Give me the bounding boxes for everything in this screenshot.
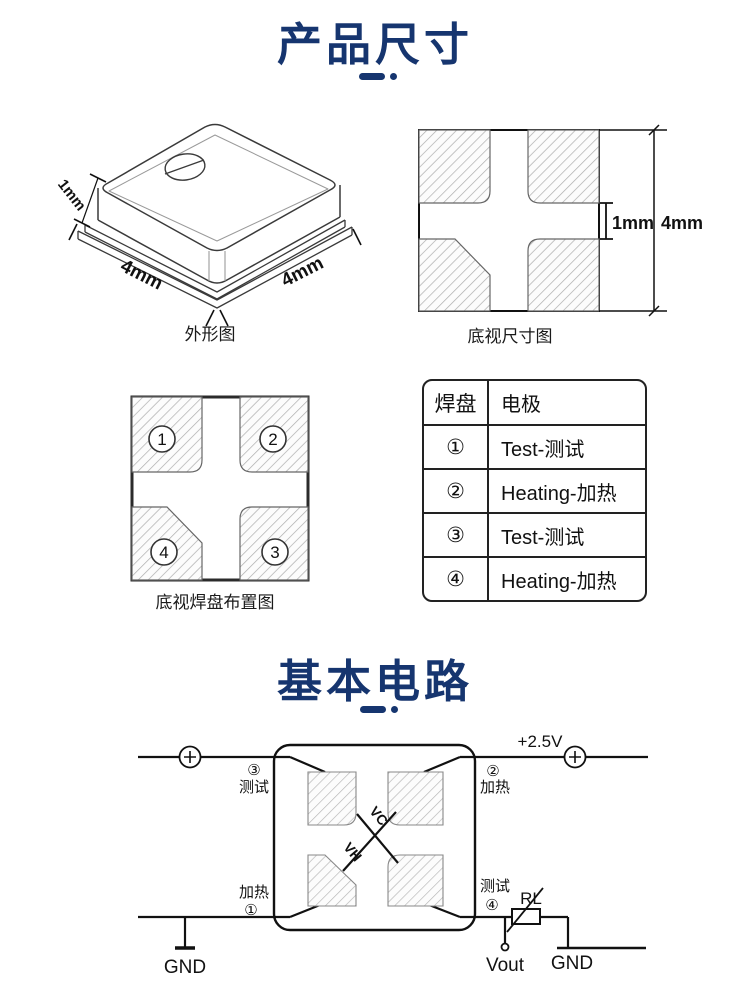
label-dim-left: 4mm (117, 256, 166, 295)
label-pin2-function: 加热 (480, 779, 510, 796)
pad-electrode-table: 焊盘 电极 ① Test-测试 ② Heating-加热 ③ Test-测试 ④… (422, 379, 647, 602)
label-gnd-left: GND (164, 957, 206, 978)
label-pin3-number: ③ (247, 762, 260, 779)
label-pin1-number: ① (244, 902, 257, 919)
product-spec-page: 产品尺寸 (0, 0, 750, 985)
pad-number-4: 4 (159, 543, 168, 562)
table-row-electrode: Test-测试 (487, 424, 645, 468)
label-pin4-function: 测试 (480, 878, 510, 895)
label-supply-voltage: +2.5V (518, 732, 564, 751)
plus-node-right (565, 747, 586, 768)
table-row-electrode: Heating-加热 (487, 468, 645, 512)
caption-bottom-view: 底视尺寸图 (405, 322, 615, 347)
package-3d-body (78, 125, 352, 309)
label-dim-side: 4mm (661, 213, 703, 233)
table-row-pad: ① (424, 424, 487, 468)
pad-number-1: 1 (157, 430, 166, 449)
label-vout: Vout (486, 955, 525, 976)
table-row-pad: ③ (424, 512, 487, 556)
plus-node-left (180, 747, 201, 768)
label-rl: RL (520, 889, 542, 908)
table-row-electrode: Heating-加热 (487, 556, 645, 600)
pad-number-2: 2 (268, 430, 277, 449)
title-underline-dash (360, 706, 386, 713)
table-header-pad: 焊盘 (424, 381, 487, 424)
label-dim-gap: 1mm (612, 213, 654, 233)
figure-outline-drawing: 1mm 4mm 4mm (35, 110, 385, 345)
label-dim-height: 1mm (54, 176, 89, 214)
pad-number-3: 3 (270, 543, 279, 562)
section-title-product-dimensions: 产品尺寸 (0, 8, 750, 73)
title-underline-dash (359, 73, 385, 80)
figure-pad-layout: 1 2 4 3 (95, 385, 335, 600)
caption-outline-drawing: 外形图 (35, 320, 385, 345)
label-pin1-function: 加热 (239, 884, 269, 901)
figure-basic-circuit: VC VH +2.5V ③ 测试 ② 加热 加热 ① 测试 ④ RL GND G… (80, 725, 690, 985)
label-pin3-function: 测试 (239, 779, 269, 796)
label-dim-right: 4mm (278, 253, 327, 292)
label-pin4-number: ④ (485, 897, 498, 914)
caption-pad-layout: 底视焊盘布置图 (95, 588, 335, 613)
title-underline-dot (390, 73, 397, 80)
figure-bottom-view-dimensions: 1mm 4mm (405, 112, 745, 342)
table-row-pad: ② (424, 468, 487, 512)
table-row-pad: ④ (424, 556, 487, 600)
vout-terminal (502, 944, 509, 951)
title-underline-dot (391, 706, 398, 713)
table-row-electrode: Test-测试 (487, 512, 645, 556)
label-pin2-number: ② (486, 763, 499, 780)
label-gnd-right: GND (551, 953, 593, 974)
table-header-electrode: 电极 (487, 381, 645, 424)
section-title-basic-circuit: 基本电路 (0, 645, 750, 710)
